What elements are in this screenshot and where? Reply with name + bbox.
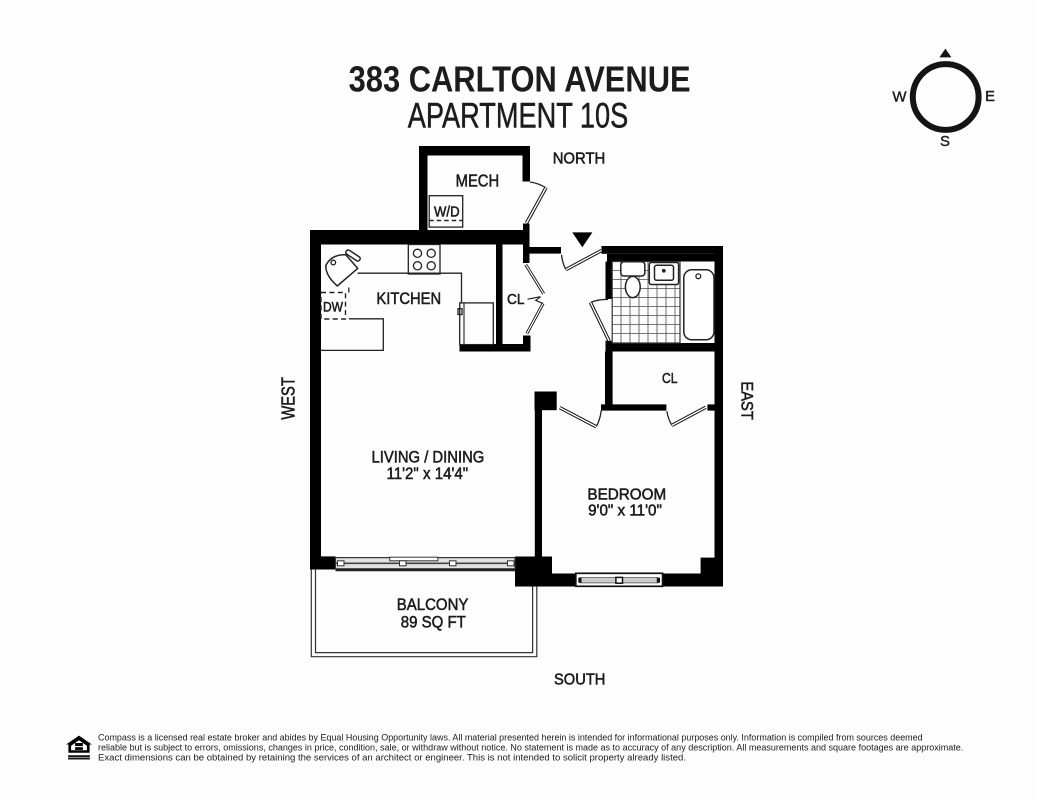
svg-text:89 SQ FT: 89 SQ FT [401, 612, 466, 631]
svg-text:CL: CL [507, 291, 525, 308]
svg-text:MECH: MECH [456, 171, 500, 191]
svg-text:Compass is a licensed real est: Compass is a licensed real estate broker… [98, 733, 923, 743]
svg-text:CL: CL [662, 370, 678, 387]
svg-text:EAST: EAST [738, 381, 757, 419]
svg-text:APARTMENT 10S: APARTMENT 10S [408, 97, 629, 136]
svg-text:WEST: WEST [278, 377, 299, 420]
svg-text:W: W [892, 89, 907, 106]
svg-text:383 CARLTON AVENUE: 383 CARLTON AVENUE [349, 59, 691, 100]
svg-text:W/D: W/D [434, 205, 460, 221]
svg-text:BALCONY: BALCONY [397, 595, 469, 614]
svg-text:E: E [985, 88, 995, 105]
svg-text:NORTH: NORTH [553, 150, 606, 167]
svg-text:9'0" x 11'0": 9'0" x 11'0" [588, 503, 662, 520]
svg-text:DW: DW [323, 299, 344, 315]
svg-text:KITCHEN: KITCHEN [376, 289, 441, 308]
svg-text:BEDROOM: BEDROOM [587, 487, 666, 504]
svg-text:reliable but is subject to err: reliable but is subject to errors, omiss… [98, 743, 963, 753]
svg-text:Exact dimensions can be obtain: Exact dimensions can be obtained by reta… [98, 753, 686, 763]
svg-text:SOUTH: SOUTH [554, 671, 605, 688]
svg-text:S: S [940, 133, 950, 150]
svg-text:11'2" x 14'4": 11'2" x 14'4" [386, 464, 468, 483]
